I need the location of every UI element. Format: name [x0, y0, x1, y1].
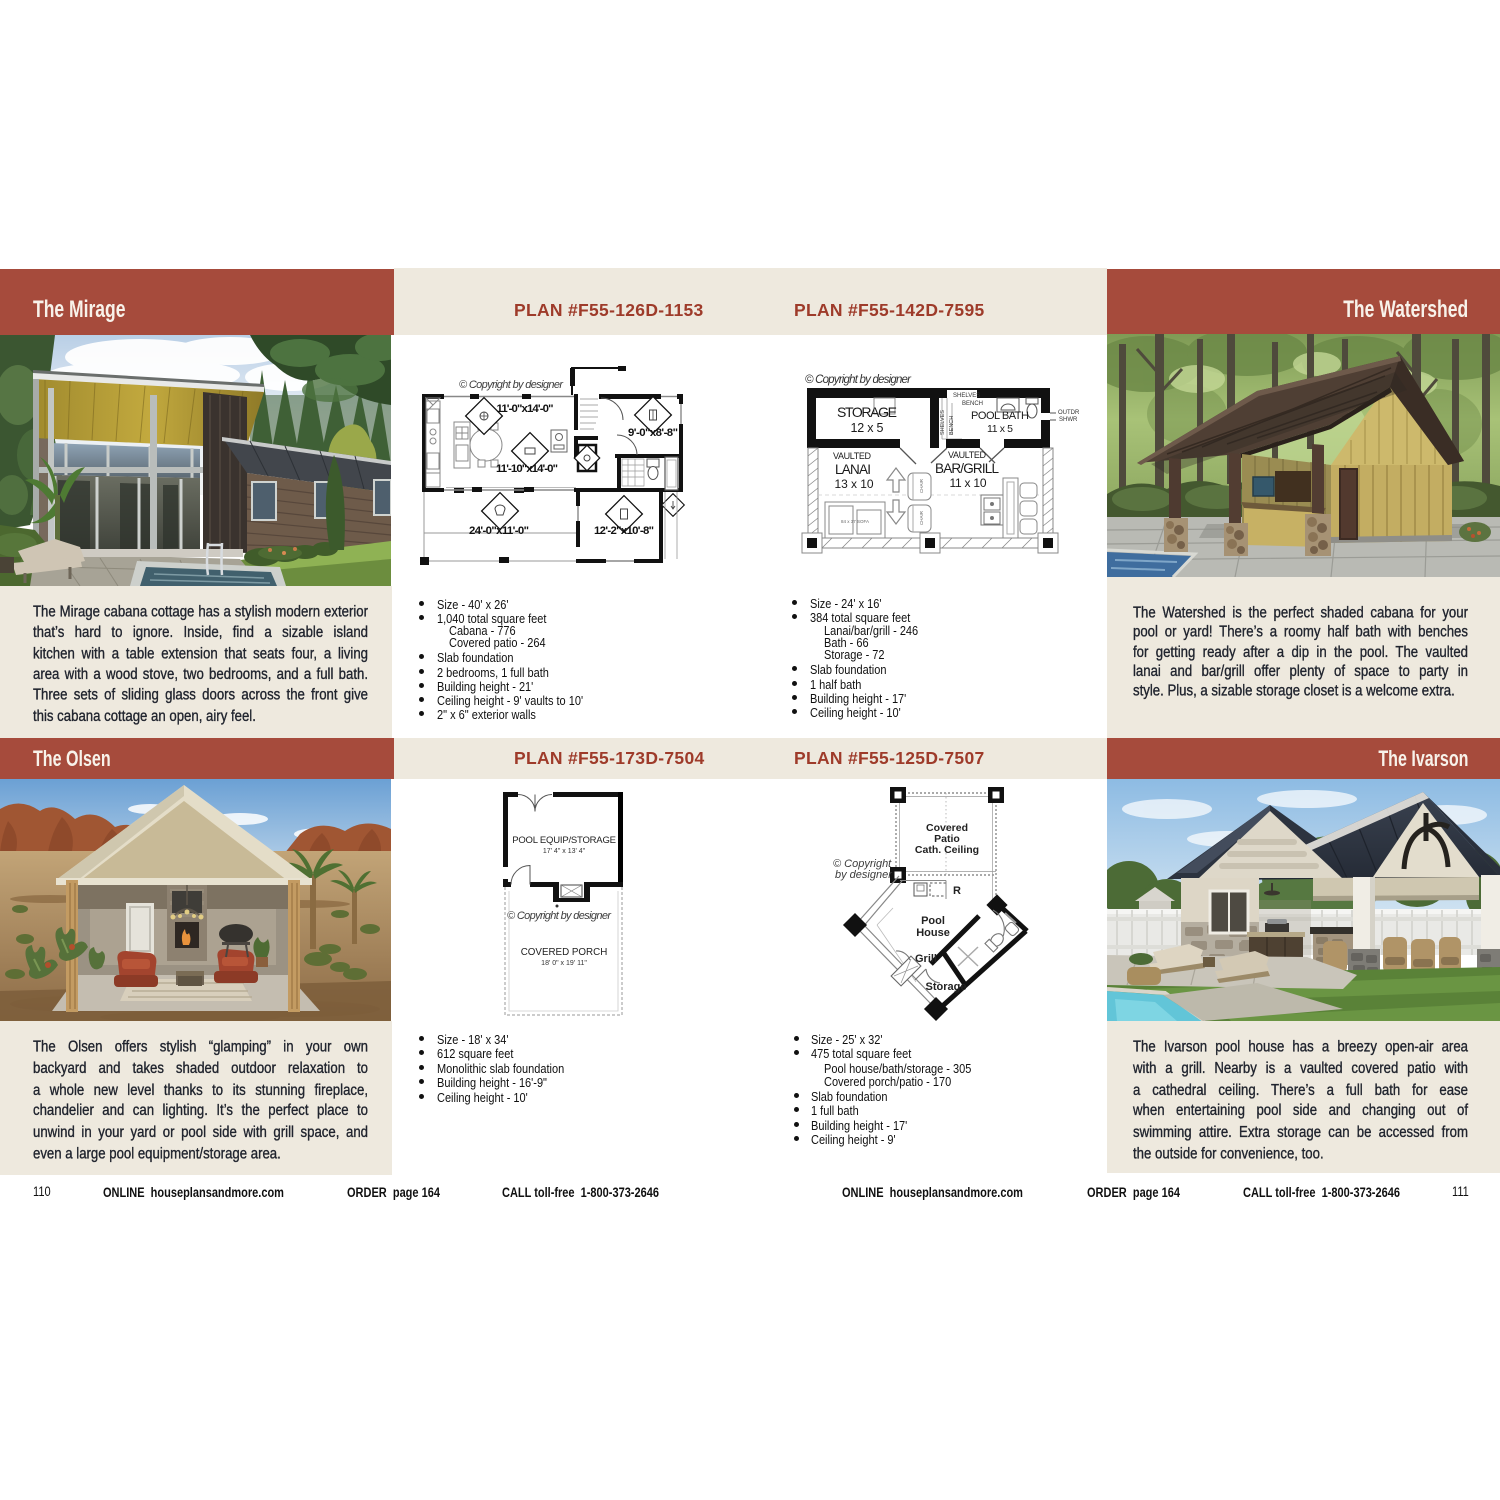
- svg-text:BENCH: BENCH: [949, 416, 955, 435]
- svg-text:18' 0" x 19' 11": 18' 0" x 19' 11": [541, 960, 587, 967]
- svg-text:11'-10"x14'-0": 11'-10"x14'-0": [496, 463, 558, 475]
- svg-text:R: R: [953, 885, 961, 897]
- svg-text:© Copyright by designer: © Copyright by designer: [459, 379, 564, 391]
- svg-text:OUTDR: OUTDR: [1058, 410, 1080, 416]
- svg-text:© Copyright by designer: © Copyright by designer: [507, 910, 612, 922]
- svg-text:11 x 5: 11 x 5: [987, 423, 1013, 435]
- svg-text:13 x 10: 13 x 10: [835, 477, 874, 491]
- svg-text:House: House: [916, 927, 950, 939]
- svg-text:SHELVES: SHELVES: [940, 410, 946, 435]
- svg-text:POOL BATH: POOL BATH: [971, 410, 1029, 422]
- svg-text:CHAIR: CHAIR: [919, 510, 924, 525]
- svg-text:11 x 10: 11 x 10: [950, 476, 987, 490]
- svg-text:POOL EQUIP/STORAGE: POOL EQUIP/STORAGE: [512, 835, 616, 846]
- svg-text:VAULTED: VAULTED: [948, 450, 987, 460]
- svg-text:Cath. Ceiling: Cath. Ceiling: [915, 844, 979, 856]
- svg-text:SHWR: SHWR: [1059, 417, 1078, 423]
- svg-text:CHAIR: CHAIR: [919, 478, 924, 493]
- svg-text:11'-0"x14'-0": 11'-0"x14'-0": [497, 403, 554, 415]
- svg-text:© Copyright by designer: © Copyright by designer: [805, 374, 912, 386]
- svg-text:SHELVES: SHELVES: [953, 393, 980, 399]
- svg-text:BENCH: BENCH: [962, 401, 983, 407]
- svg-text:12'-2"x10'-8": 12'-2"x10'-8": [594, 525, 654, 537]
- svg-text:Storage: Storage: [926, 981, 967, 993]
- svg-text:BAR/GRILL: BAR/GRILL: [935, 461, 999, 476]
- svg-text:by designer: by designer: [835, 869, 893, 881]
- svg-text:17' 4" x 13' 4": 17' 4" x 13' 4": [543, 848, 586, 855]
- svg-text:STORAGE: STORAGE: [837, 404, 897, 420]
- svg-text:Pool: Pool: [921, 915, 945, 927]
- svg-text:VAULTED: VAULTED: [833, 451, 872, 461]
- svg-text:84 x 37 SOFA: 84 x 37 SOFA: [841, 519, 869, 524]
- svg-text:9'-0"x8'-8": 9'-0"x8'-8": [628, 427, 678, 439]
- svg-text:COVERED PORCH: COVERED PORCH: [521, 947, 608, 958]
- svg-text:Grill: Grill: [915, 953, 937, 965]
- svg-text:LANAI: LANAI: [835, 462, 871, 477]
- svg-text:24'-0"x11'-0": 24'-0"x11'-0": [469, 525, 529, 537]
- svg-text:12 x 5: 12 x 5: [851, 421, 884, 435]
